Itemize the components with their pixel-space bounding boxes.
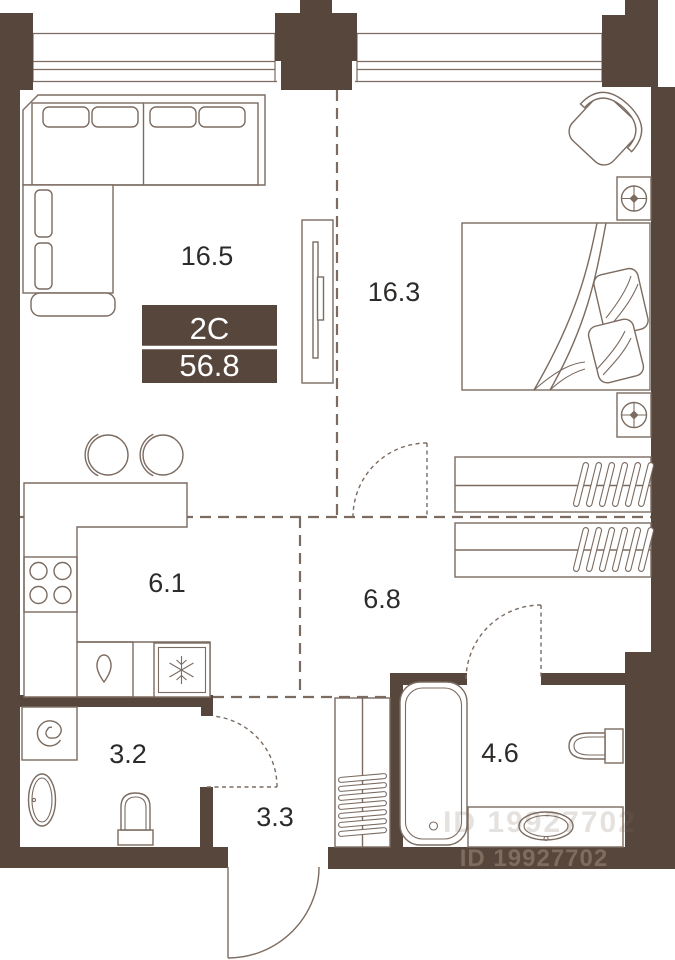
bar-stools — [85, 434, 183, 476]
floorplan-drawing: 2C 56.8 16.5 16.3 6.1 6.8 3.2 3.3 4.6 ID… — [0, 0, 675, 960]
unit-area-label: 56.8 — [179, 348, 239, 383]
nightstand-top — [617, 177, 651, 220]
door-bedroom — [353, 443, 427, 517]
room-label-bathroom: 4.6 — [481, 738, 519, 768]
room-label-kitchen: 6.1 — [148, 568, 186, 598]
wardrobe-top — [455, 457, 654, 512]
pillows — [587, 267, 650, 385]
bath-toilet — [569, 729, 623, 763]
wall-bath-top-right — [541, 673, 625, 685]
unit-badge: 2C 56.8 — [142, 305, 277, 383]
room-label-wc: 3.2 — [109, 739, 147, 769]
window-living — [25, 34, 277, 82]
lamp-icon — [622, 403, 647, 428]
corner-sofa — [23, 95, 265, 316]
room-label-bedroom: 16.3 — [368, 277, 421, 307]
nightstand-bottom — [617, 393, 651, 437]
armchair — [559, 81, 654, 176]
window-bedroom — [355, 34, 604, 82]
wall-left — [0, 85, 20, 867]
lamp-icon — [622, 186, 647, 211]
tv-stand — [302, 220, 333, 383]
wall-left-pilaster — [0, 13, 33, 90]
wall-pillar-top-middle — [275, 0, 357, 90]
door-bathroom — [466, 605, 541, 680]
floorplan-screenshot: 2C 56.8 16.5 16.3 6.1 6.8 3.2 3.3 4.6 ID… — [0, 0, 675, 960]
wall-bottom-left — [0, 847, 228, 868]
wall-wc-right — [200, 787, 213, 847]
wardrobe-bottom — [455, 523, 654, 577]
unit-type-label: 2C — [190, 311, 230, 346]
room-label-hall: 6.8 — [363, 584, 401, 614]
double-bed — [462, 223, 650, 390]
hall-cabinet — [335, 698, 390, 847]
door-wc — [207, 716, 277, 787]
washing-machine — [22, 707, 77, 760]
room-label-living: 16.5 — [181, 241, 234, 271]
wall-pillar-top-right — [602, 0, 658, 87]
pedestal-sink — [29, 774, 56, 826]
watermark-id-text: ID 19927702 — [460, 845, 608, 872]
fridge — [154, 643, 210, 697]
room-label-entry: 3.3 — [256, 802, 294, 832]
watermark-faint-text: ID 19927702 — [443, 806, 637, 839]
door-entrance — [228, 867, 319, 958]
wc-toilet — [118, 793, 153, 845]
wall-right — [651, 87, 675, 652]
